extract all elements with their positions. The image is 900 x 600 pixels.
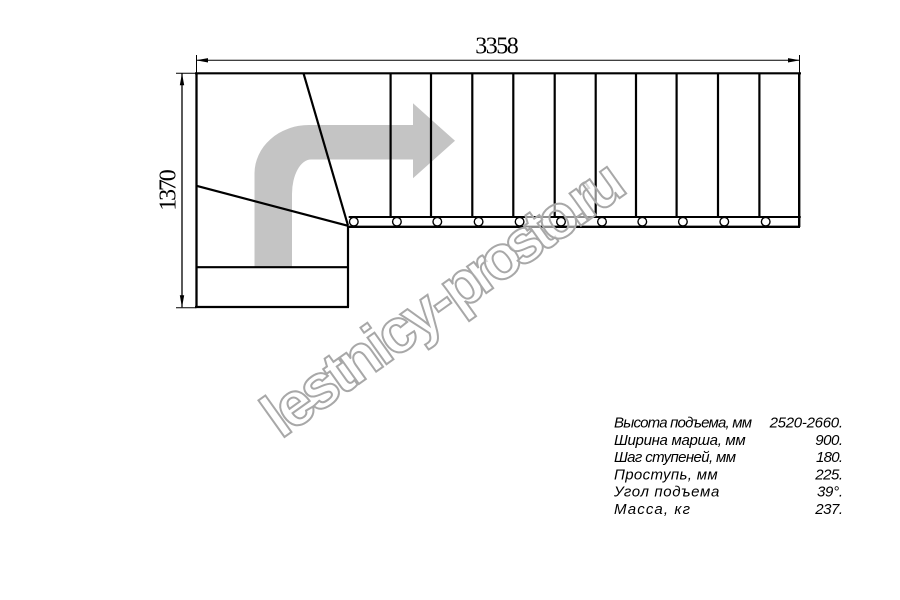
svg-text:Ширина марша, мм: Ширина марша, мм [614, 432, 746, 449]
svg-text:lestnicy-: lestnicy- [249, 267, 469, 451]
svg-text:1370: 1370 [156, 169, 182, 211]
svg-text:900.: 900. [815, 432, 843, 449]
svg-text:Высота подъема, мм: Высота подъема, мм [614, 415, 752, 432]
svg-text:237.: 237. [814, 501, 843, 518]
svg-text:Угол подъема: Угол подъема [613, 484, 719, 501]
svg-text:Проступь, мм: Проступь, мм [614, 466, 718, 483]
svg-text:Шаг ступеней, мм: Шаг ступеней, мм [614, 449, 736, 466]
svg-text:Масса, кг: Масса, кг [614, 501, 691, 518]
svg-text:2520-2660.: 2520-2660. [769, 415, 843, 432]
svg-text:3358: 3358 [475, 34, 519, 60]
svg-text:39°.: 39°. [817, 484, 843, 501]
svg-text:180.: 180. [816, 449, 843, 466]
svg-text:prosto.ru: prosto.ru [426, 146, 637, 324]
svg-text:225.: 225. [814, 466, 843, 483]
